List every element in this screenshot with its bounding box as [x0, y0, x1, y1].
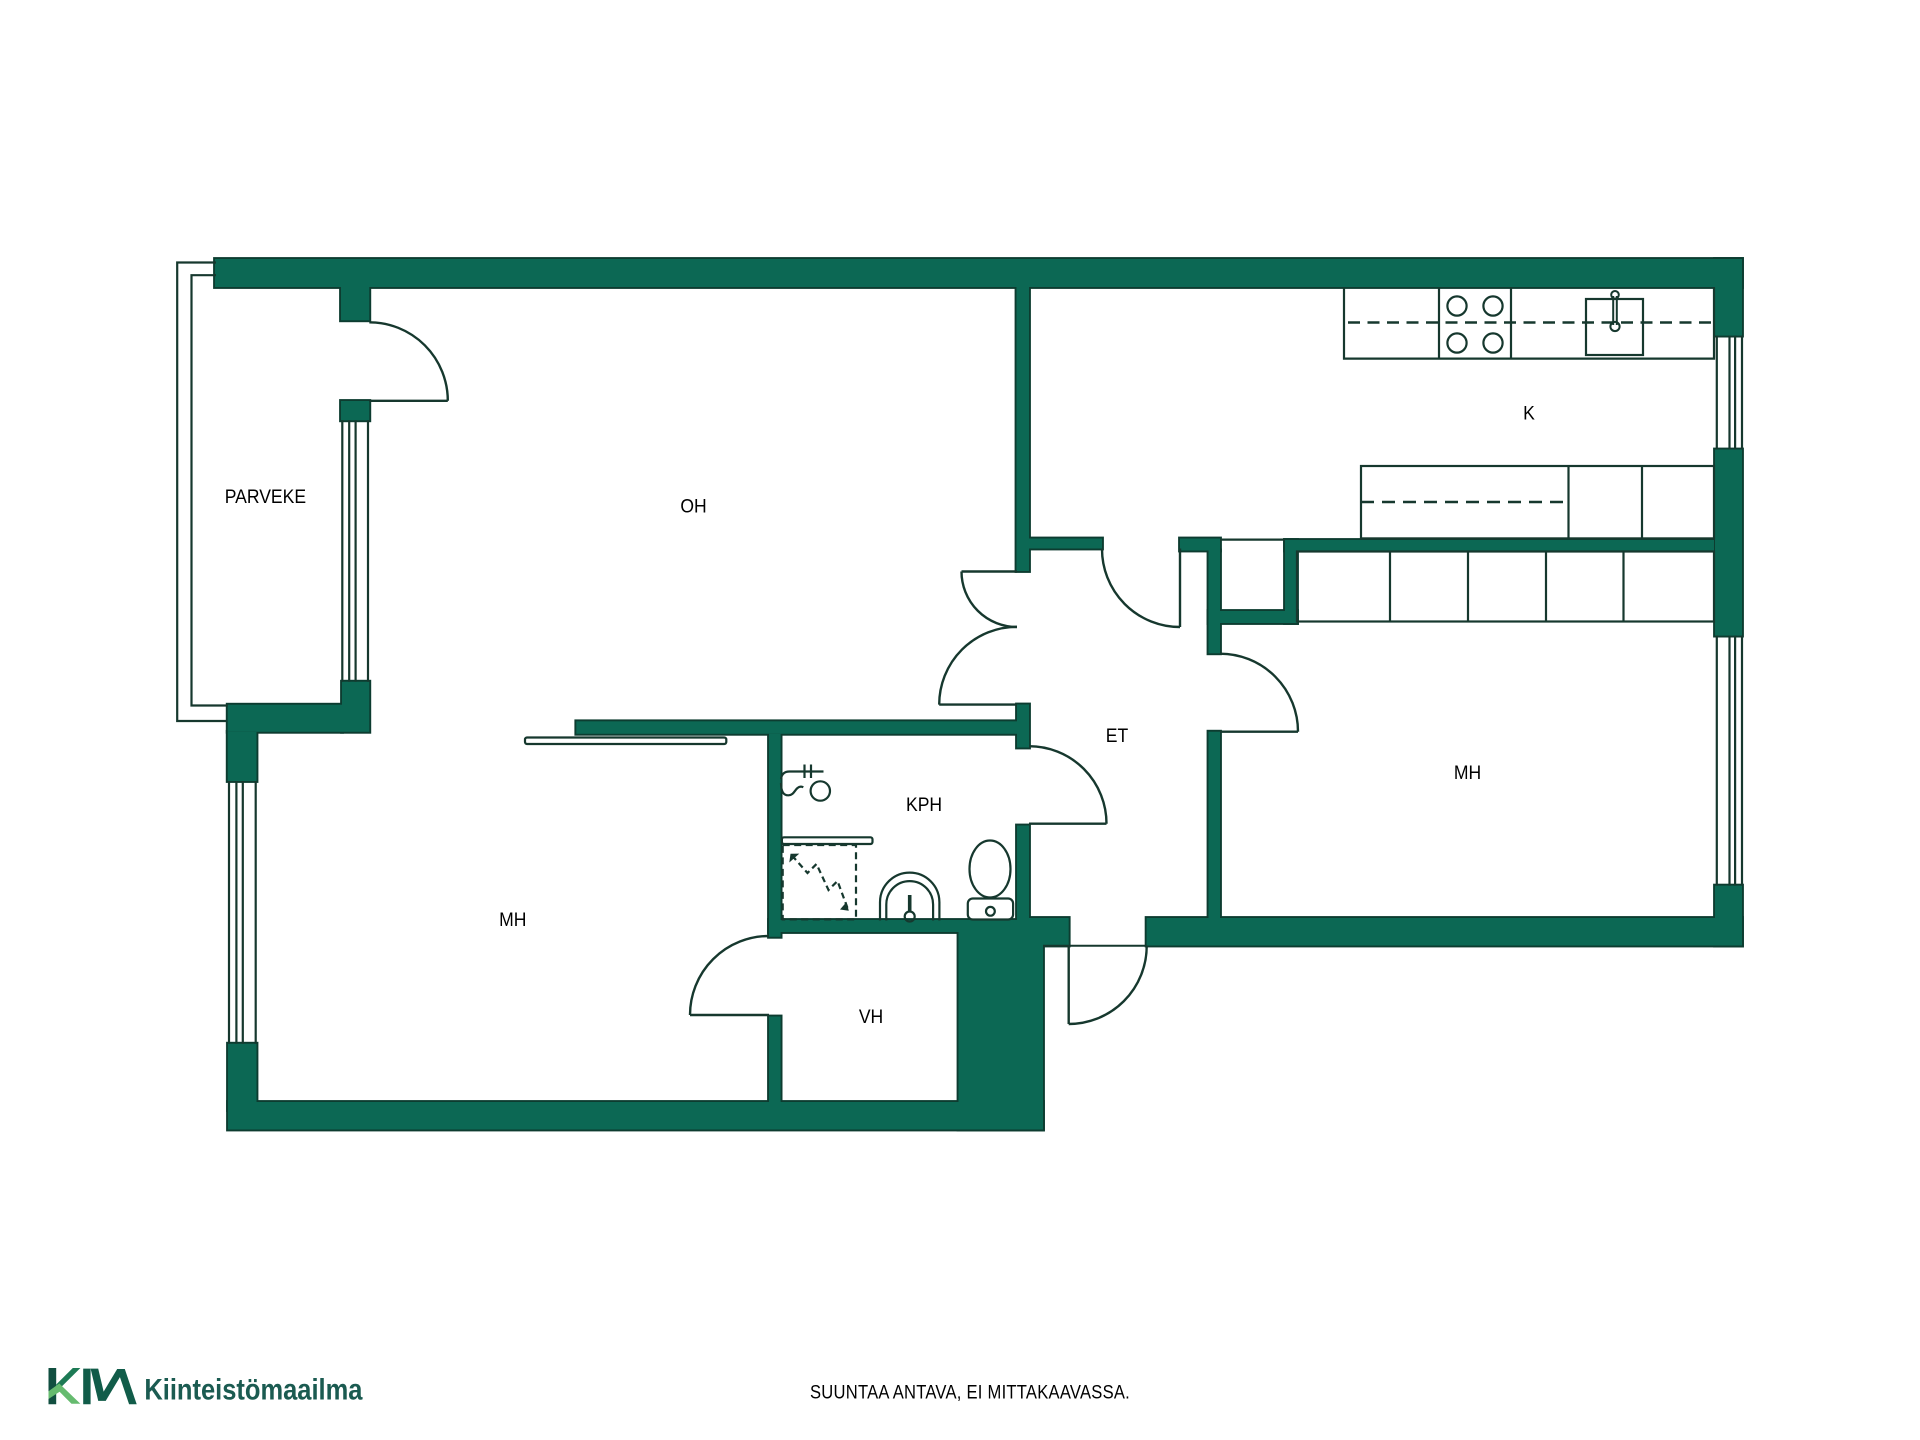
svg-text:PARVEKE: PARVEKE — [225, 485, 306, 507]
svg-text:SUUNTAA ANTAVA, EI MITTAKAAVAS: SUUNTAA ANTAVA, EI MITTAKAAVASSA. — [810, 1381, 1130, 1403]
svg-text:K: K — [1523, 402, 1535, 424]
svg-text:KPH: KPH — [906, 793, 942, 815]
svg-text:Kiinteistömaailma: Kiinteistömaailma — [144, 1373, 363, 1406]
svg-text:ET: ET — [1106, 724, 1128, 746]
svg-text:MH: MH — [499, 908, 526, 930]
svg-text:OH: OH — [680, 494, 706, 516]
svg-text:MH: MH — [1454, 761, 1481, 783]
svg-text:VH: VH — [859, 1005, 883, 1027]
